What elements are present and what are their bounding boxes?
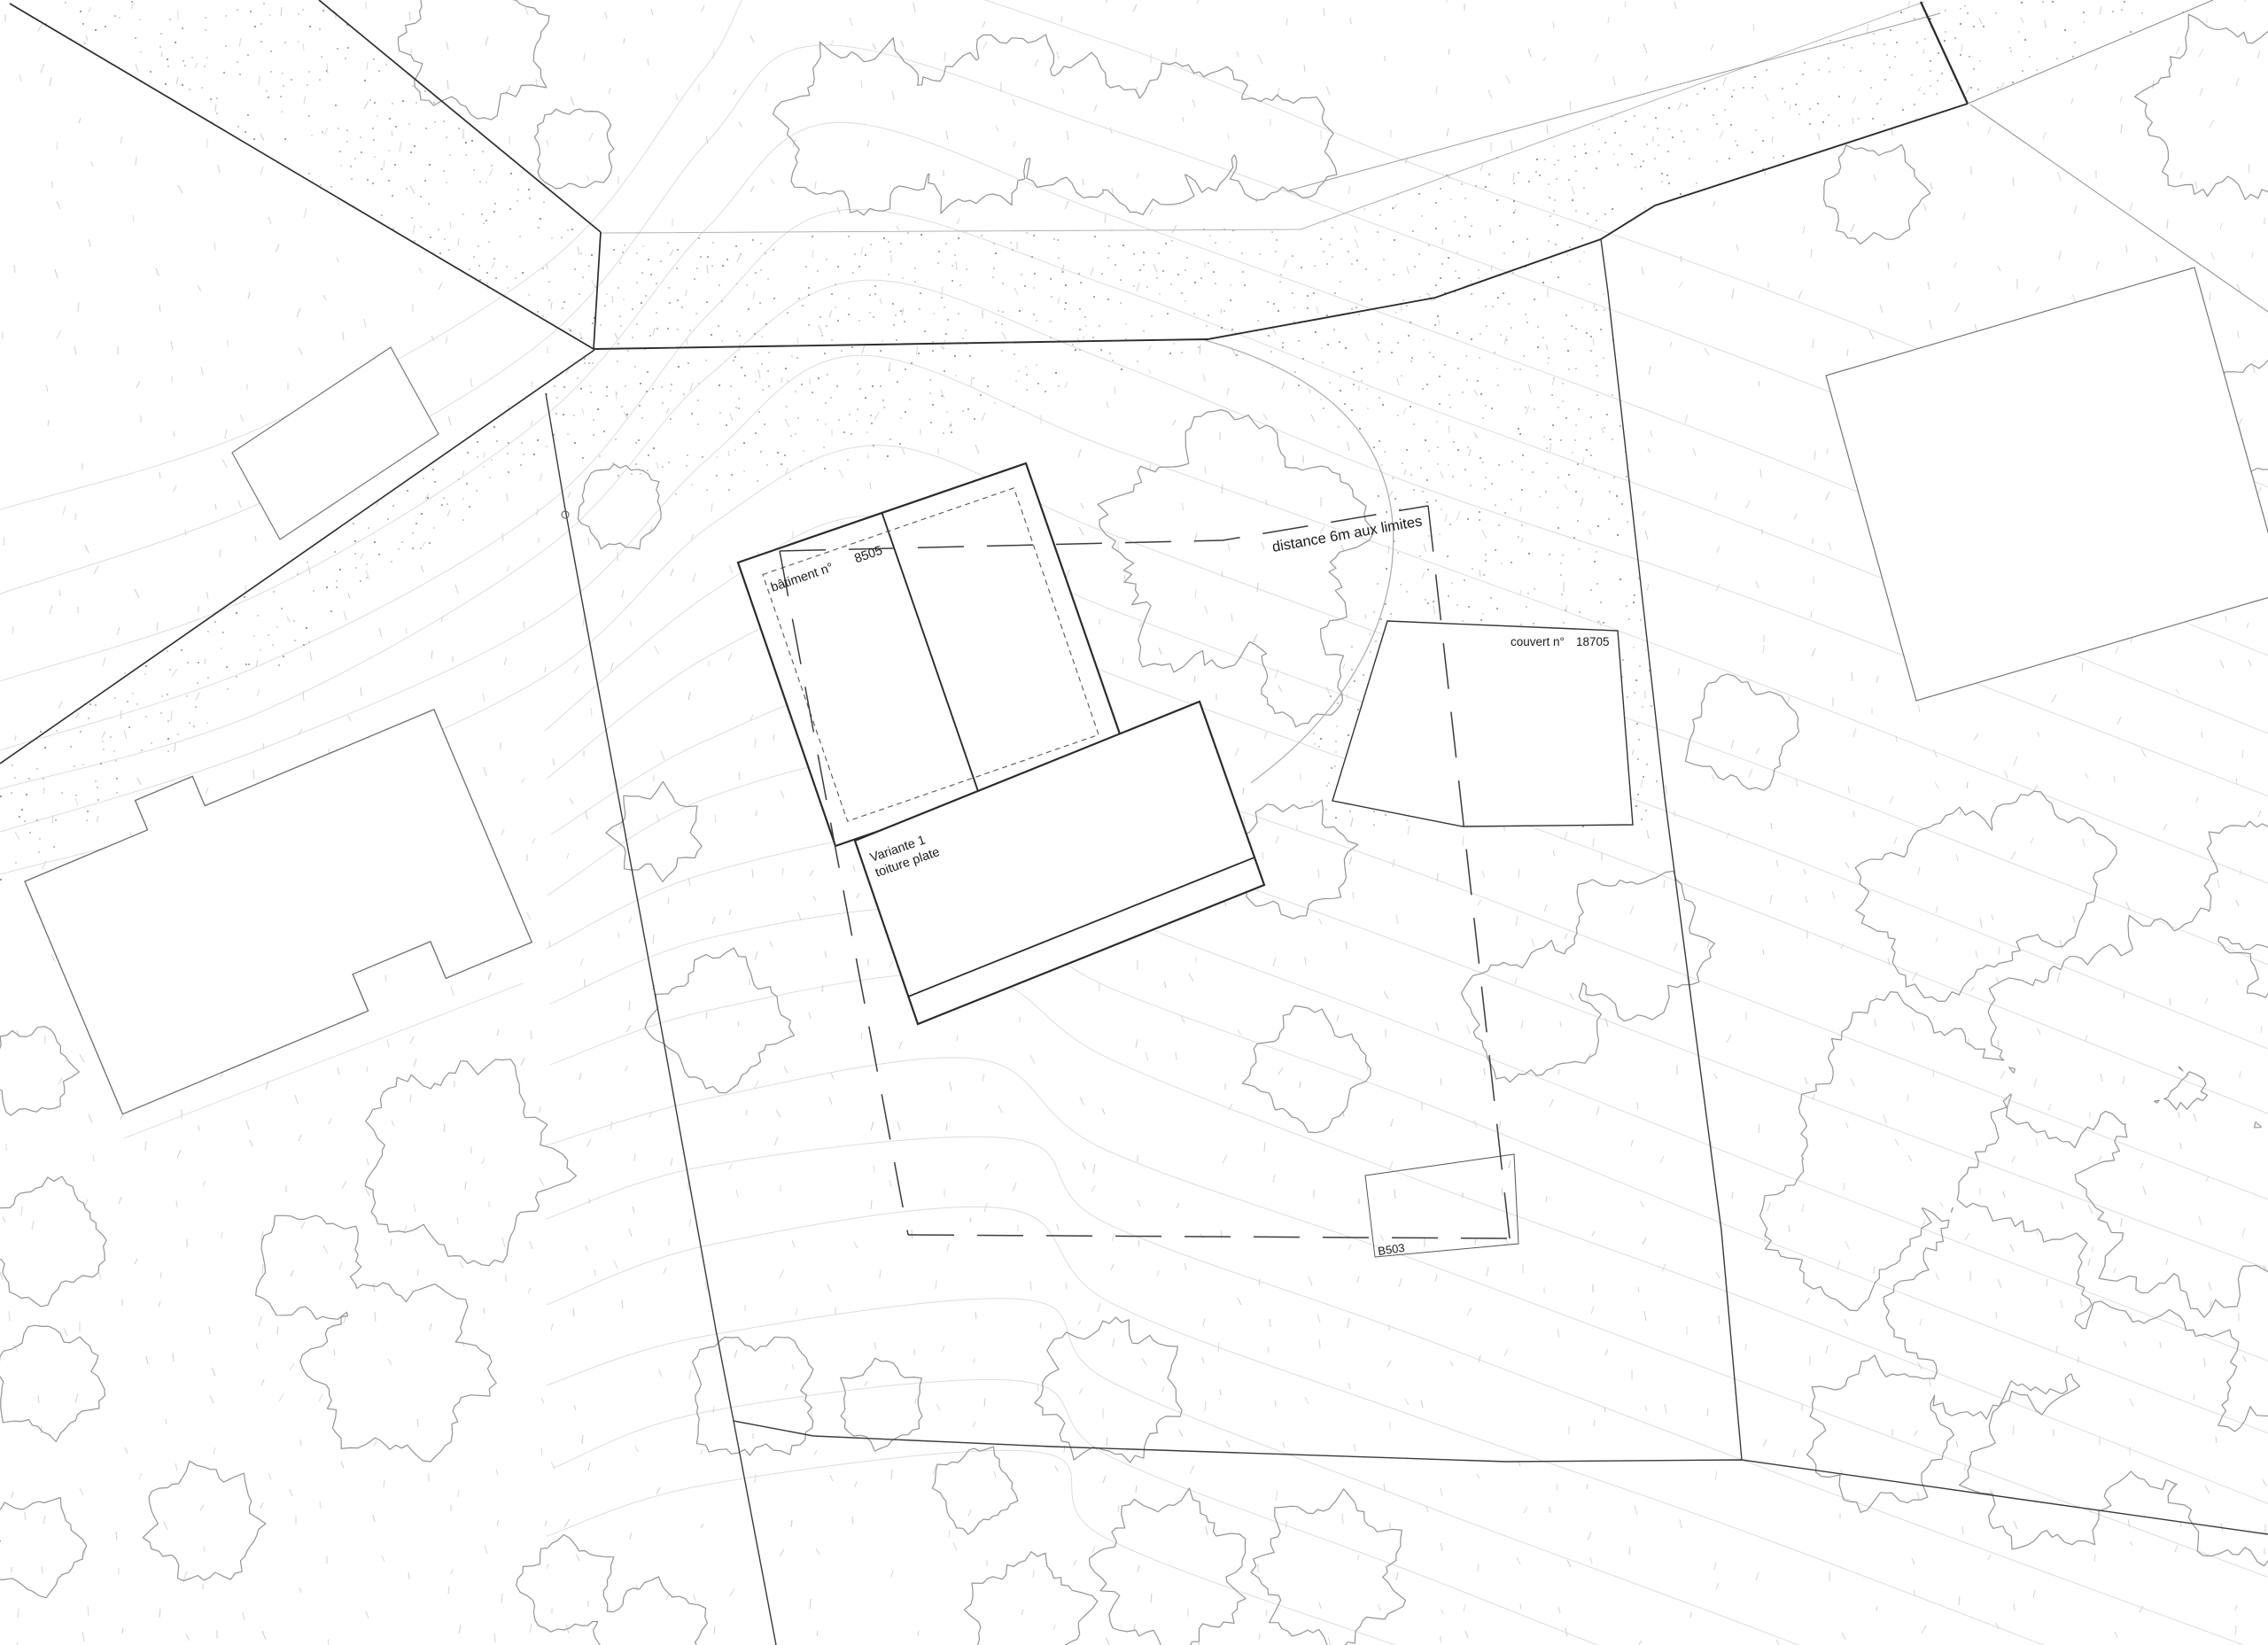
svg-text:couvert n°: couvert n°: [1511, 635, 1565, 648]
svg-text:18705: 18705: [1576, 635, 1610, 648]
